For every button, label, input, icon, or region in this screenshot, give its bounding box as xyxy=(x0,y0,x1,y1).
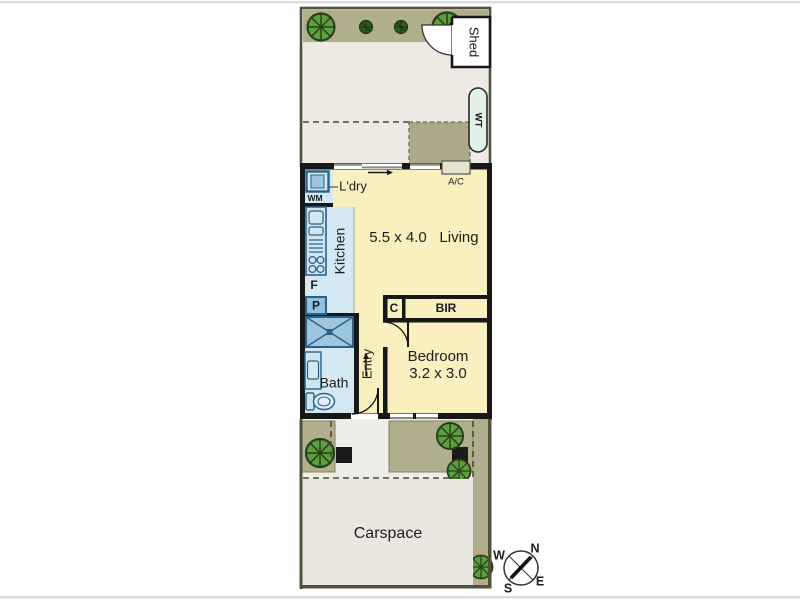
fridge-label: F xyxy=(310,278,317,292)
sink-icon xyxy=(309,211,323,224)
laundry-label: L'dry xyxy=(339,178,367,193)
dwelling: A/C xyxy=(300,161,492,420)
toilet-icon xyxy=(306,393,335,410)
compass-rose: N W S E xyxy=(493,541,544,595)
bedroom-west-wall xyxy=(383,347,388,413)
small-tree-icon xyxy=(360,21,373,34)
vanity xyxy=(305,352,321,389)
living-dims: 5.5 x 4.0 xyxy=(369,229,427,246)
tree-icon xyxy=(437,423,463,449)
bir-label: BIR xyxy=(436,301,457,315)
west-boundary xyxy=(300,419,303,589)
post xyxy=(336,447,352,463)
compass-south-label: S xyxy=(504,581,512,595)
pantry-label: P xyxy=(312,299,320,313)
sink-icon xyxy=(309,227,323,235)
tree-icon xyxy=(306,439,334,467)
rear-yard: WT Shed xyxy=(301,8,490,166)
cupboard-divider-wall xyxy=(402,297,406,319)
floorplan-drawing: WT Shed xyxy=(0,0,800,600)
entry-label: Entry xyxy=(359,348,374,379)
image-bottom-edge xyxy=(0,596,800,599)
bedroom-label: Bedroom xyxy=(408,348,469,365)
east-boundary xyxy=(488,419,492,589)
south-boundary xyxy=(300,585,492,589)
shower xyxy=(306,317,353,347)
east-wall xyxy=(487,163,492,419)
front-yard: Carspace xyxy=(300,419,493,589)
compass-north-label: N xyxy=(530,541,539,555)
shed-label: Shed xyxy=(467,27,482,57)
south-openings xyxy=(351,414,438,419)
compass-east-label: E xyxy=(536,574,544,588)
water-tank-label: WT xyxy=(472,113,483,128)
water-tank: WT xyxy=(469,88,487,152)
wm-label: WM xyxy=(307,193,322,203)
bedroom-dims: 3.2 x 3.0 xyxy=(409,365,467,382)
floorplan-page: WT Shed xyxy=(0,0,800,600)
cupboard-west-wall xyxy=(383,295,388,322)
image-top-edge xyxy=(0,1,800,4)
bath-entry-wall xyxy=(354,313,359,413)
bath-label: Bath xyxy=(320,375,349,391)
washing-machine xyxy=(307,172,329,192)
rear-deck xyxy=(409,122,470,164)
robe-south-wall xyxy=(383,318,487,323)
carspace-label: Carspace xyxy=(354,525,423,542)
west-wall xyxy=(300,163,305,419)
kitchen-label: Kitchen xyxy=(332,228,348,275)
cupboard-label: C xyxy=(390,301,399,315)
robe-north-wall xyxy=(383,295,487,299)
kitchen-bench xyxy=(306,207,326,275)
compass-west-label: W xyxy=(493,548,505,562)
tree-icon xyxy=(308,14,335,41)
ac-label: A/C xyxy=(448,177,464,188)
living-label: Living xyxy=(439,229,478,246)
pantry: P xyxy=(306,297,326,314)
small-tree-icon xyxy=(395,21,408,34)
